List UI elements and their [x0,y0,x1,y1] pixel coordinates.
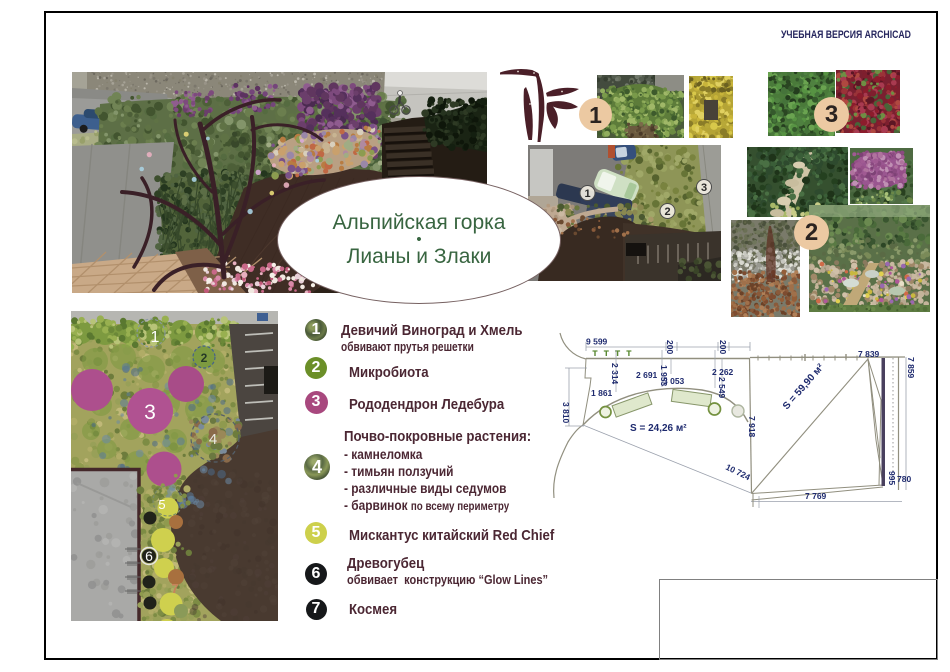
svg-text:1: 1 [584,188,590,200]
svg-text:2: 2 [664,206,670,218]
svg-text:3: 3 [701,182,707,194]
